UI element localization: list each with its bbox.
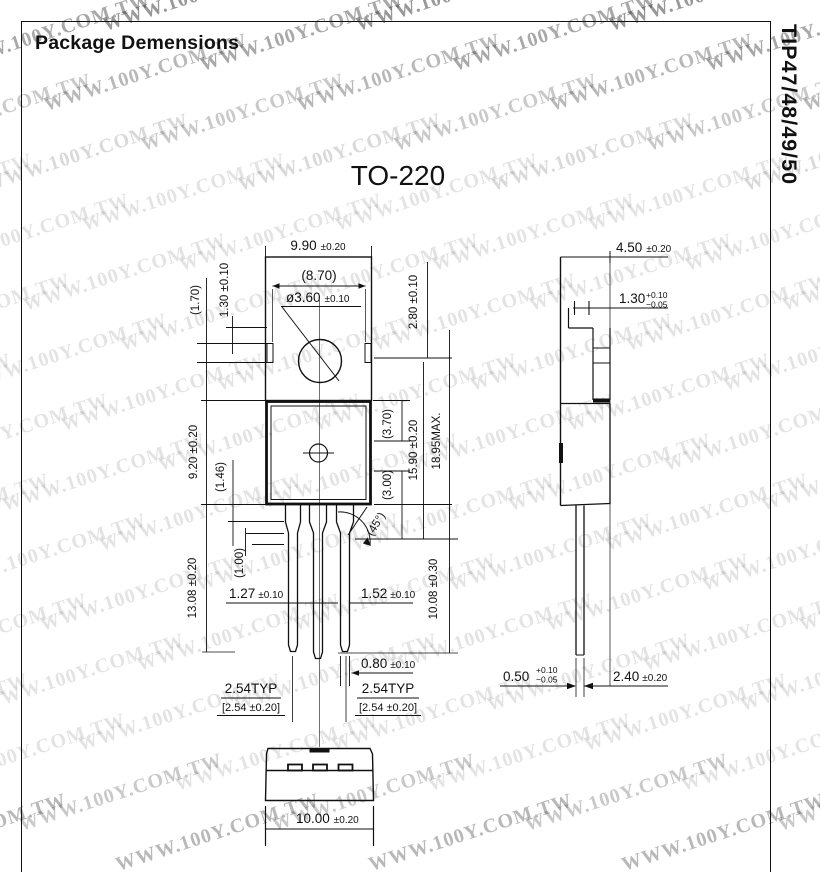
dim-lead-free-length: 10.08 ±0.30 (428, 559, 440, 620)
dim-mid-right: 15.90 ±0.20 (408, 420, 420, 481)
dim-tab-thickness-plus: +0.10 (646, 290, 668, 300)
dim-tab-top: 2.80 ±0.10 (408, 275, 420, 329)
side-step-bar (593, 399, 610, 403)
package-drawing: 9.90±0.20 (8.70) ø3.60±0.10 (1.70) 1.30 … (0, 0, 820, 872)
part-number-vertical: TIP47/48/49/50 (776, 24, 801, 185)
lead-1 (286, 505, 301, 652)
dim-notch-height: (1.70) (190, 285, 202, 315)
bottom-lead-1 (288, 765, 302, 771)
bottom-notch (310, 748, 330, 753)
dim-shoulder-b: (1.00) (234, 548, 246, 578)
dim-lead-width-1: 1.27±0.10 (229, 586, 284, 601)
dim-bottom-width: 10.00±0.20 (296, 811, 359, 826)
dim-lower-right: (3.00) (382, 470, 394, 500)
side-body-mark (559, 443, 563, 463)
dim-lead-thickness-minus: −0.05 (536, 675, 558, 685)
page-title: Package Demensions (35, 32, 239, 55)
dim-upper-right: (3.70) (382, 409, 394, 439)
dim-depth: 4.50±0.20 (616, 240, 672, 255)
drawing-title: TO-220 (340, 160, 456, 192)
dim-tip-width: 0.80±0.10 (361, 656, 416, 671)
side-view (500, 251, 668, 697)
dim-lead-width-2: 1.52±0.10 (361, 586, 416, 601)
dim-lead-thickness-plus: +0.10 (536, 665, 558, 675)
tab-notch-left (267, 344, 273, 363)
bottom-view (266, 748, 374, 846)
tab-notch-right (365, 344, 371, 363)
dim-inner-width: (8.70) (301, 268, 336, 283)
dim-pitch-right-alt: [2.54 ±0.20] (359, 702, 417, 714)
dim-width: 9.90±0.20 (290, 238, 346, 253)
dim-setback: 2.40±0.20 (613, 669, 668, 684)
dim-notch-offset: 1.30 ±0.10 (219, 263, 231, 317)
dim-shoulder-a: (1.46) (215, 462, 227, 492)
dim-tab-thickness: 1.30 (619, 291, 645, 306)
dim-chamfer-angle: (45°) (365, 510, 389, 538)
dim-total-height: 18.95MAX. (431, 413, 443, 470)
dim-hole: ø3.60±0.10 (286, 290, 350, 305)
dim-pitch-left-alt: [2.54 ±0.20] (222, 702, 280, 714)
dim-lead-length: 13.08 ±0.20 (187, 558, 199, 619)
dim-lead-thickness: 0.50 (503, 669, 529, 684)
lead-2 (310, 505, 327, 659)
bottom-lead-2 (313, 765, 327, 771)
dim-tab-thickness-minus: −0.05 (646, 300, 668, 310)
bottom-lead-3 (339, 765, 353, 771)
lead-3 (337, 505, 354, 652)
bottom-outline (266, 749, 374, 801)
hole-leader-line (282, 307, 339, 381)
dim-body-height: 9.20 ±0.20 (188, 425, 200, 479)
dim-pitch-right: 2.54TYP (362, 681, 415, 696)
dim-pitch-left: 2.54TYP (225, 681, 278, 696)
